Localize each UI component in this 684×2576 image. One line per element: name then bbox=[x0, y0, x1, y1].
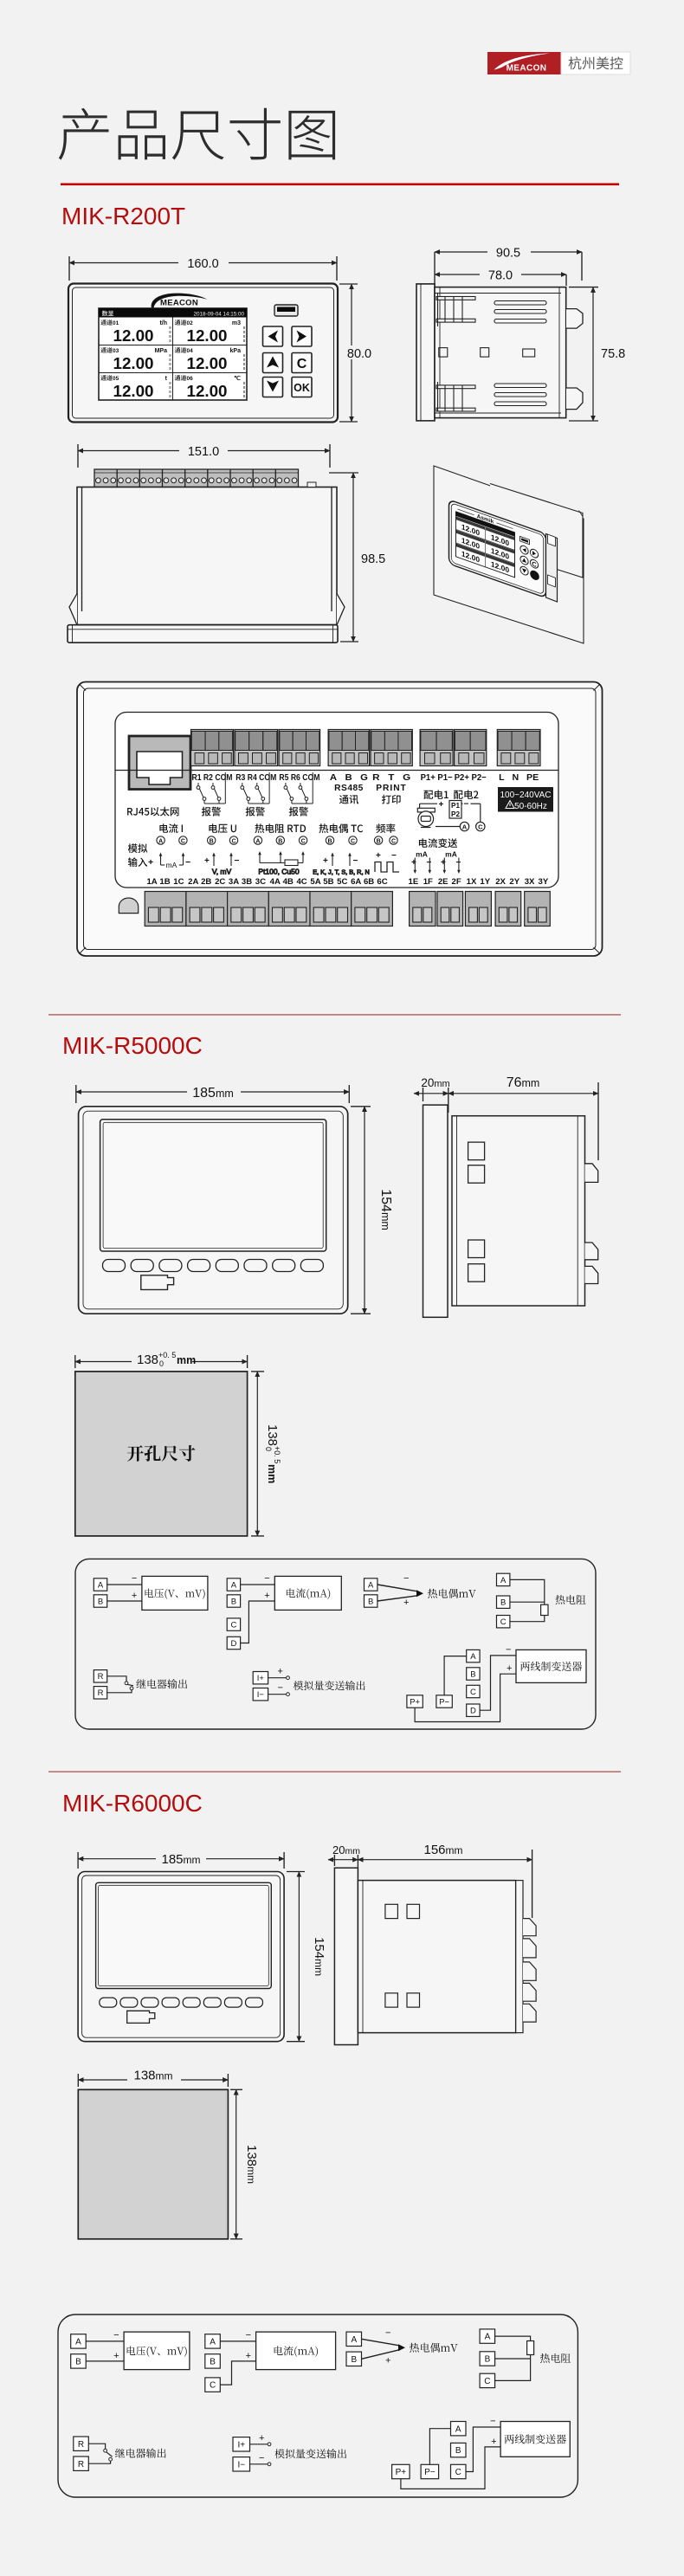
svg-text:A: A bbox=[210, 2338, 216, 2347]
svg-text:20mm: 20mm bbox=[332, 1843, 360, 1856]
svg-text:MEACON: MEACON bbox=[160, 299, 198, 308]
svg-text:100~240VAC: 100~240VAC bbox=[500, 791, 551, 800]
svg-text:R3 R4 COM: R3 R4 COM bbox=[236, 773, 276, 783]
svg-text:R: R bbox=[98, 1672, 104, 1682]
svg-text:B: B bbox=[455, 2446, 461, 2456]
svg-text:V, mV: V, mV bbox=[212, 868, 232, 876]
svg-text:+: + bbox=[376, 851, 381, 861]
svg-text:01: 01 bbox=[113, 320, 119, 326]
svg-text:+: + bbox=[441, 858, 446, 868]
svg-text:P+: P+ bbox=[410, 1697, 420, 1707]
svg-text:8: 8 bbox=[243, 339, 246, 343]
svg-text:−: − bbox=[185, 857, 190, 868]
svg-text:185mm: 185mm bbox=[192, 1086, 234, 1101]
svg-text:R: R bbox=[78, 2460, 84, 2469]
svg-text:A: A bbox=[455, 2424, 461, 2434]
svg-text:138mm: 138mm bbox=[133, 2069, 172, 2083]
svg-text:A: A bbox=[75, 2338, 81, 2347]
svg-text:mm: mm bbox=[266, 1464, 278, 1483]
svg-text:−: − bbox=[353, 856, 358, 866]
svg-text:R1 R2 COM: R1 R2 COM bbox=[192, 773, 233, 783]
svg-text:P+: P+ bbox=[396, 2468, 407, 2477]
svg-text:PRINT: PRINT bbox=[376, 784, 407, 793]
svg-text:B: B bbox=[98, 1597, 103, 1606]
svg-text:6A: 6A bbox=[351, 877, 361, 887]
svg-text:20mm: 20mm bbox=[421, 1076, 449, 1089]
svg-text:4B: 4B bbox=[283, 877, 294, 887]
svg-text:1E: 1E bbox=[409, 877, 419, 887]
svg-text:D: D bbox=[230, 1639, 236, 1649]
svg-text:90.5: 90.5 bbox=[496, 247, 520, 261]
svg-text:+: + bbox=[403, 1598, 409, 1608]
svg-text:B: B bbox=[210, 838, 214, 844]
svg-text:2X: 2X bbox=[495, 877, 506, 887]
svg-text:+: + bbox=[278, 1667, 283, 1677]
svg-text:+: + bbox=[323, 856, 328, 866]
svg-text:A B G: A B G bbox=[330, 773, 368, 783]
svg-text:3C: 3C bbox=[255, 877, 266, 887]
svg-text:B: B bbox=[231, 1597, 236, 1606]
svg-text:RS485: RS485 bbox=[334, 784, 364, 793]
svg-text:P1+ P1−: P1+ P1− bbox=[421, 773, 453, 783]
svg-text:−: − bbox=[132, 1573, 137, 1584]
svg-text:+: + bbox=[204, 856, 210, 866]
svg-text:1A: 1A bbox=[146, 877, 157, 887]
svg-text:138mm: 138mm bbox=[244, 2145, 259, 2184]
svg-text:C: C bbox=[391, 838, 396, 844]
svg-text:C: C bbox=[181, 838, 185, 844]
svg-text:R5 R6 COM: R5 R6 COM bbox=[279, 773, 319, 783]
svg-text:8: 8 bbox=[243, 366, 246, 371]
svg-text:+: + bbox=[132, 1591, 137, 1601]
svg-text:OK: OK bbox=[294, 382, 310, 394]
svg-text:8: 8 bbox=[169, 394, 171, 398]
svg-text:4C: 4C bbox=[296, 877, 307, 887]
svg-text:B: B bbox=[210, 2358, 216, 2367]
svg-text:+0. 5: +0. 5 bbox=[158, 1351, 176, 1359]
svg-text:A: A bbox=[98, 1580, 104, 1590]
svg-text:03: 03 bbox=[113, 348, 119, 354]
svg-text:R: R bbox=[98, 1688, 104, 1698]
svg-text:2018-09-04 14:15:00: 2018-09-04 14:15:00 bbox=[194, 312, 245, 318]
svg-text:2E: 2E bbox=[438, 877, 448, 887]
svg-text:MEACON: MEACON bbox=[507, 64, 547, 74]
svg-text:MIK-R5000C: MIK-R5000C bbox=[62, 1032, 203, 1059]
svg-text:151.0: 151.0 bbox=[188, 445, 219, 459]
svg-text:P−: P− bbox=[439, 1697, 449, 1707]
svg-text:1F: 1F bbox=[423, 877, 433, 887]
svg-text:P2+ P2−: P2+ P2− bbox=[455, 773, 487, 783]
svg-text:−: − bbox=[235, 856, 240, 866]
svg-text:05: 05 bbox=[113, 376, 119, 382]
svg-text:5A: 5A bbox=[310, 877, 320, 887]
svg-text:−: − bbox=[490, 2417, 495, 2427]
svg-text:12.00: 12.00 bbox=[113, 382, 154, 400]
svg-text:12.00: 12.00 bbox=[113, 326, 154, 345]
svg-text:1B: 1B bbox=[159, 877, 170, 887]
svg-text:C: C bbox=[231, 838, 236, 844]
svg-text:+: + bbox=[264, 1591, 269, 1601]
svg-text:+0. 5: +0. 5 bbox=[273, 1446, 281, 1463]
svg-text:A: A bbox=[368, 1580, 374, 1590]
svg-text:138: 138 bbox=[137, 1353, 158, 1367]
svg-text:℃: ℃ bbox=[234, 375, 241, 382]
svg-text:t/h: t/h bbox=[159, 320, 167, 326]
svg-text:1C: 1C bbox=[173, 877, 184, 887]
svg-text:C: C bbox=[297, 357, 307, 371]
svg-text:2B: 2B bbox=[201, 877, 211, 887]
svg-text:−: − bbox=[264, 1573, 269, 1584]
svg-text:B: B bbox=[368, 1597, 373, 1606]
svg-text:02: 02 bbox=[187, 320, 194, 326]
svg-text:1Y: 1Y bbox=[480, 877, 490, 887]
svg-text:A: A bbox=[351, 2335, 357, 2345]
svg-text:+: + bbox=[411, 858, 416, 868]
svg-text:+: + bbox=[491, 2437, 496, 2447]
svg-text:−: − bbox=[278, 1683, 283, 1694]
svg-text:154mm: 154mm bbox=[378, 1189, 393, 1230]
svg-text:3A: 3A bbox=[229, 877, 239, 887]
svg-text:12.00: 12.00 bbox=[187, 382, 228, 400]
svg-text:0: 0 bbox=[159, 1359, 164, 1368]
svg-text:C: C bbox=[351, 838, 355, 844]
svg-text:R: R bbox=[78, 2440, 84, 2450]
svg-text:0: 0 bbox=[264, 1447, 273, 1451]
svg-text:A: A bbox=[158, 838, 163, 844]
svg-text:2A: 2A bbox=[188, 877, 198, 887]
svg-text:mm: mm bbox=[177, 1354, 196, 1366]
svg-text:3Y: 3Y bbox=[539, 877, 549, 887]
svg-text:−: − bbox=[427, 858, 432, 868]
svg-text:P2: P2 bbox=[451, 810, 460, 818]
svg-text:12.00: 12.00 bbox=[113, 354, 154, 372]
svg-text:1X: 1X bbox=[467, 877, 477, 887]
svg-text:P−: P− bbox=[424, 2468, 436, 2477]
svg-text:C: C bbox=[484, 2377, 490, 2386]
svg-text:C: C bbox=[470, 1688, 476, 1697]
svg-text:04: 04 bbox=[187, 348, 194, 354]
svg-text:+: + bbox=[113, 2351, 119, 2361]
svg-text:A: A bbox=[485, 2333, 491, 2342]
svg-text:+: + bbox=[507, 1663, 512, 1674]
svg-text:+: + bbox=[385, 2355, 390, 2366]
svg-text:B: B bbox=[351, 2355, 357, 2365]
svg-text:C: C bbox=[500, 1617, 507, 1627]
svg-text:−: − bbox=[391, 851, 397, 861]
svg-text:−: − bbox=[506, 1644, 511, 1655]
svg-text:6B: 6B bbox=[364, 877, 374, 887]
svg-text:160.0: 160.0 bbox=[187, 257, 218, 271]
svg-text:B: B bbox=[327, 838, 332, 844]
svg-text:B: B bbox=[470, 1669, 475, 1679]
svg-text:I+: I+ bbox=[237, 2440, 245, 2450]
svg-text:8: 8 bbox=[169, 339, 171, 343]
svg-text:B: B bbox=[75, 2358, 81, 2367]
svg-text:154mm: 154mm bbox=[312, 1937, 326, 1976]
svg-text:3B: 3B bbox=[242, 877, 252, 887]
svg-text:B: B bbox=[500, 1598, 506, 1608]
svg-text:8: 8 bbox=[243, 394, 246, 398]
svg-text:−: − bbox=[464, 800, 469, 810]
svg-text:+: + bbox=[148, 857, 153, 868]
svg-text:50-60Hz: 50-60Hz bbox=[514, 802, 547, 811]
svg-text:C: C bbox=[455, 2468, 461, 2477]
svg-text:A: A bbox=[500, 1576, 507, 1585]
svg-text:−: − bbox=[385, 2327, 390, 2338]
svg-text:B: B bbox=[485, 2355, 491, 2365]
svg-text:MPa: MPa bbox=[155, 348, 168, 354]
svg-text:−: − bbox=[246, 2330, 251, 2340]
svg-text:2Y: 2Y bbox=[509, 877, 519, 887]
svg-text:C: C bbox=[210, 2381, 216, 2391]
svg-text:mA: mA bbox=[445, 850, 457, 859]
svg-text:75.8: 75.8 bbox=[601, 347, 625, 361]
svg-text:C: C bbox=[230, 1621, 236, 1630]
svg-text:Pt100, Cu50: Pt100, Cu50 bbox=[258, 868, 300, 876]
svg-text:I−: I− bbox=[237, 2460, 245, 2469]
svg-text:I+: I+ bbox=[257, 1674, 265, 1683]
svg-text:+: + bbox=[246, 2351, 251, 2361]
svg-text:A: A bbox=[462, 823, 468, 830]
svg-text:−: − bbox=[403, 1573, 409, 1584]
svg-text:+: + bbox=[439, 800, 444, 810]
svg-text:6C: 6C bbox=[377, 877, 387, 887]
svg-text:kPa: kPa bbox=[230, 348, 242, 354]
svg-text:4A: 4A bbox=[270, 877, 281, 887]
svg-text:D: D bbox=[470, 1707, 476, 1716]
svg-text:2C: 2C bbox=[215, 877, 225, 887]
svg-text:I−: I− bbox=[257, 1690, 265, 1700]
svg-text:5B: 5B bbox=[323, 877, 333, 887]
svg-text:E, K, J, T, S, B, R, N: E, K, J, T, S, B, R, N bbox=[313, 868, 370, 876]
svg-text:C: C bbox=[478, 823, 483, 830]
svg-text:185mm: 185mm bbox=[161, 1852, 200, 1867]
svg-text:P1: P1 bbox=[451, 802, 460, 810]
svg-text:m3: m3 bbox=[232, 320, 241, 326]
svg-text:12.00: 12.00 bbox=[187, 326, 228, 345]
svg-text:−: − bbox=[259, 2453, 264, 2463]
svg-text:98.5: 98.5 bbox=[361, 552, 385, 566]
svg-text:R T G: R T G bbox=[372, 773, 410, 783]
svg-text:3X: 3X bbox=[525, 877, 535, 887]
svg-text:mA: mA bbox=[166, 861, 177, 869]
svg-text:C: C bbox=[301, 838, 306, 844]
svg-text:5C: 5C bbox=[337, 877, 347, 887]
svg-text:138: 138 bbox=[265, 1424, 280, 1446]
svg-text:78.0: 78.0 bbox=[488, 269, 513, 283]
svg-text:B: B bbox=[377, 838, 381, 844]
svg-text:156mm: 156mm bbox=[423, 1843, 462, 1857]
svg-text:80.0: 80.0 bbox=[347, 347, 371, 361]
svg-text:mA: mA bbox=[416, 850, 428, 859]
svg-text:MIK-R6000C: MIK-R6000C bbox=[62, 1790, 203, 1817]
svg-text:06: 06 bbox=[187, 376, 194, 382]
svg-text:12.00: 12.00 bbox=[187, 354, 228, 372]
svg-text:L N PE: L N PE bbox=[499, 773, 539, 783]
svg-text:A: A bbox=[255, 838, 260, 844]
svg-text:76mm: 76mm bbox=[507, 1075, 540, 1090]
svg-text:A: A bbox=[231, 1580, 237, 1590]
svg-text:B: B bbox=[278, 838, 282, 844]
svg-text:−: − bbox=[113, 2330, 119, 2340]
svg-text:MIK-R200T: MIK-R200T bbox=[61, 203, 185, 229]
svg-text:2F: 2F bbox=[451, 877, 461, 887]
svg-text:+: + bbox=[259, 2433, 264, 2444]
svg-text:8: 8 bbox=[169, 366, 171, 371]
svg-text:A: A bbox=[470, 1652, 476, 1662]
